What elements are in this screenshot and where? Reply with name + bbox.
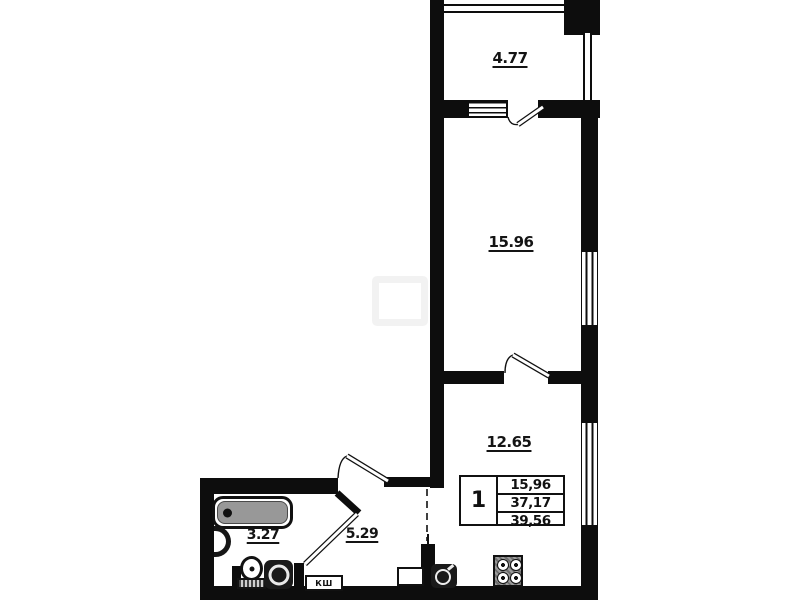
summary-table: 1 15,96 37,17 39,56 bbox=[459, 475, 565, 526]
wall-right bbox=[581, 100, 598, 600]
wall-living-kitchen-left bbox=[430, 371, 504, 384]
toilet-drain bbox=[249, 566, 254, 571]
room-label-balcony: 4.77 bbox=[492, 49, 527, 67]
wall-entry-top bbox=[384, 477, 432, 487]
bathroom-sink bbox=[214, 526, 231, 557]
wall-living-kitchen-right bbox=[548, 371, 581, 384]
watermark bbox=[372, 276, 428, 326]
kitchen-sink-faucet bbox=[447, 564, 454, 570]
kitchen-sink-bowl bbox=[435, 569, 451, 585]
window-living-room bbox=[582, 252, 597, 325]
wall-top-right-block bbox=[564, 0, 600, 35]
room-label-hallway: 5.29 bbox=[346, 526, 379, 542]
entry-door-arc bbox=[338, 456, 347, 478]
wall-left-lower bbox=[200, 478, 214, 600]
washing-machine-drum bbox=[268, 564, 289, 585]
summary-living-area: 15,96 bbox=[498, 477, 563, 493]
kitchen-cabinet bbox=[397, 567, 424, 586]
floor-plan: КШ bbox=[0, 0, 799, 600]
summary-rooms-count: 1 bbox=[461, 477, 498, 524]
washing-machine bbox=[264, 560, 293, 589]
kitchen-door-leaf bbox=[513, 355, 549, 376]
wall-bathroom-top bbox=[200, 478, 338, 494]
bathtub-basin bbox=[217, 501, 288, 524]
wall-stub-bathroom-right bbox=[294, 563, 304, 592]
summary-areas: 15,96 37,17 39,56 bbox=[498, 477, 563, 524]
room-label-living: 15.96 bbox=[489, 233, 534, 251]
wall-balcony-bottom-left bbox=[430, 100, 468, 118]
cabinet-ksh: КШ bbox=[305, 575, 343, 591]
kitchen-door-arc bbox=[505, 355, 513, 373]
kitchen-sink bbox=[431, 564, 457, 588]
bathtub bbox=[212, 496, 293, 529]
stove-burner bbox=[510, 572, 522, 584]
stove-burner bbox=[497, 572, 509, 584]
room-label-kitchen: 12.65 bbox=[487, 433, 532, 451]
stove bbox=[493, 555, 523, 587]
cabinet-ksh-label: КШ bbox=[315, 579, 332, 588]
balcony-glazing-right bbox=[583, 33, 592, 101]
stove-burner bbox=[497, 559, 509, 571]
wall-left-upper bbox=[430, 0, 444, 488]
bathtub-drain bbox=[223, 508, 232, 517]
window-kitchen bbox=[582, 423, 597, 525]
balcony-window bbox=[467, 100, 508, 118]
summary-apartment-area: 37,17 bbox=[498, 493, 563, 511]
wall-bathroom-diagonal bbox=[337, 493, 359, 513]
room-label-bathroom: 3.27 bbox=[247, 527, 280, 543]
toilet-tank bbox=[237, 578, 266, 589]
entry-door-leaf bbox=[347, 456, 388, 481]
summary-total-area: 39,56 bbox=[498, 511, 563, 529]
stove-burner bbox=[510, 559, 522, 571]
balcony-railing bbox=[444, 4, 564, 13]
balcony-door-arc bbox=[508, 117, 518, 125]
